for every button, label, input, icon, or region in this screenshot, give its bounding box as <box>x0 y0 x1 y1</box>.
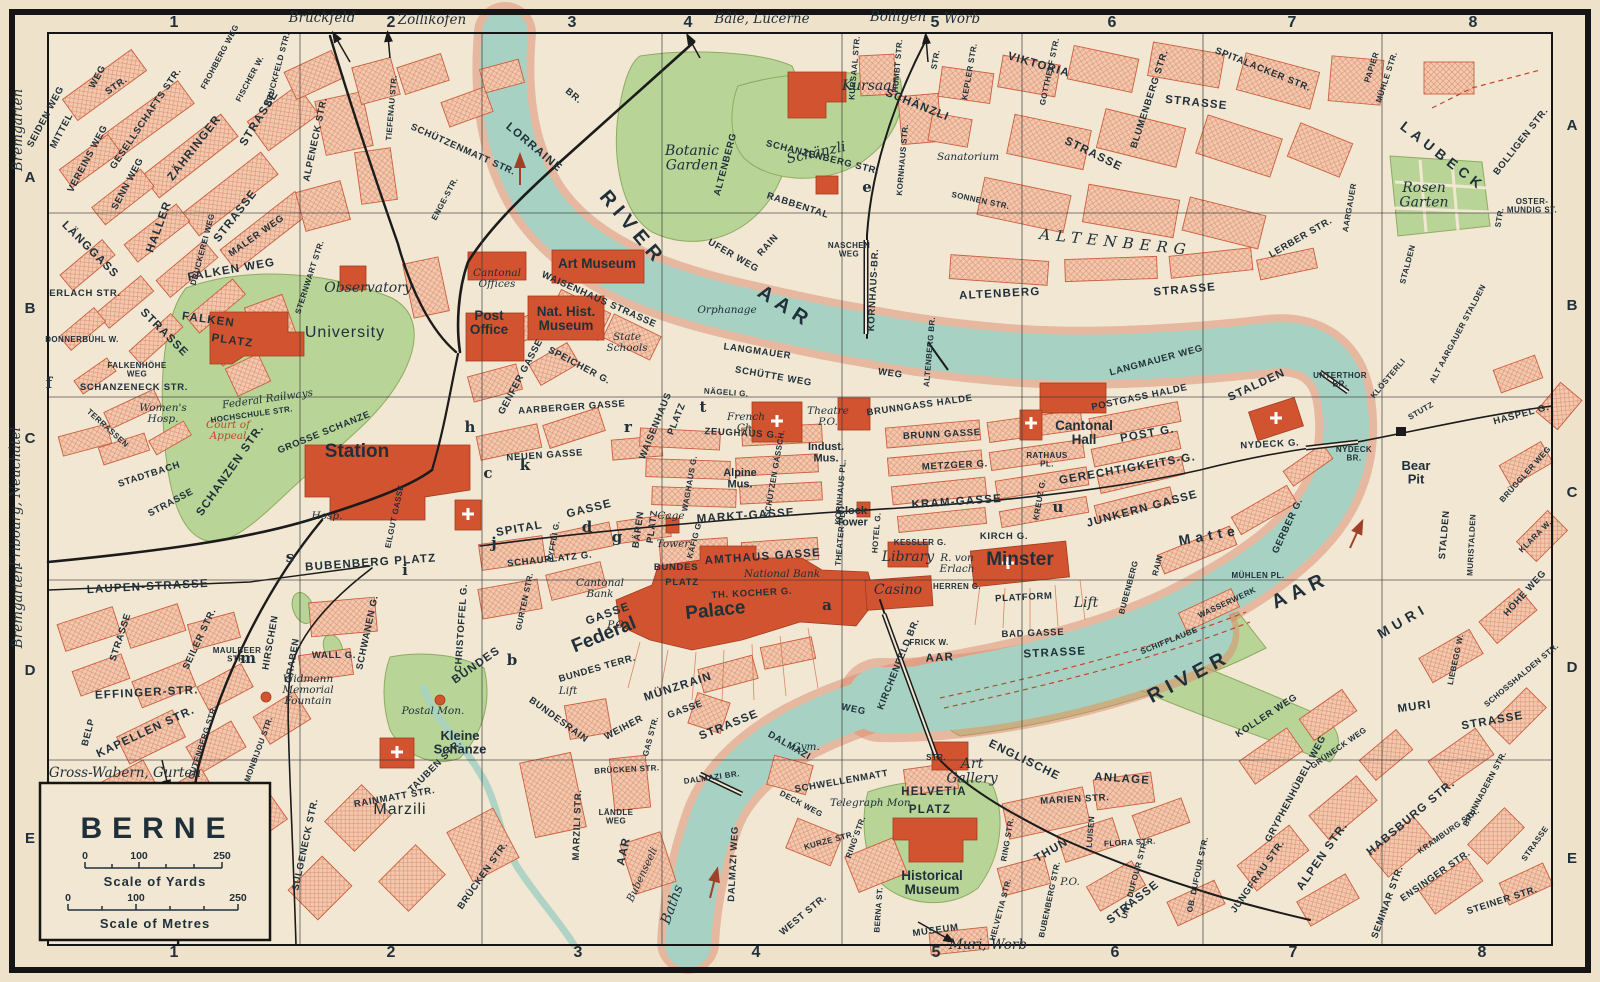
grid-letter-left: A <box>25 169 36 186</box>
map-label-pl: BotanicGarden <box>664 143 719 174</box>
map-label-pl2: Tower <box>657 538 691 550</box>
map-label-twn: University <box>305 324 385 341</box>
scale-tick: 100 <box>130 850 148 862</box>
widmann-fountain-dot <box>261 692 271 702</box>
rabbental-building <box>816 176 838 194</box>
map-label-pl2: R. vonErlach <box>939 552 975 575</box>
map-label-lt: m <box>240 649 256 667</box>
map-label-dest: Bremgarten <box>10 89 26 172</box>
grid-number-top: 4 <box>684 14 693 31</box>
city-block <box>1424 62 1474 94</box>
map-label-pl2: Orphanage <box>697 304 756 316</box>
map-label-pl: Observatory <box>324 280 413 296</box>
map-label-pl: Lift <box>1073 595 1099 611</box>
map-label-pl2: P.O. <box>1059 876 1080 888</box>
map-label-lt: t <box>700 398 707 416</box>
city-block <box>652 487 737 508</box>
scale-tick: 0 <box>65 892 71 904</box>
grid-number-top: 6 <box>1108 14 1117 31</box>
map-label-dest: Bolligen <box>869 9 926 25</box>
grid-letter-left: C <box>25 430 36 447</box>
map-label-s2: BAD GASSE <box>1001 627 1064 640</box>
grid-number-top: 1 <box>170 14 179 31</box>
map-label-pl2: CantonalOffices <box>473 267 521 290</box>
map-label-lt: e <box>862 178 872 196</box>
map-label-s2: KIRCH G. <box>980 531 1028 542</box>
map-label-pl2: Cage <box>657 510 684 522</box>
map-label-lt: k <box>520 456 531 474</box>
map-label-s2: WALL G. <box>312 650 356 661</box>
grid-letter-right: C <box>1567 484 1578 501</box>
map-label-dest: Zollikofen <box>397 12 466 28</box>
map-label-s1: HELVETIA <box>901 786 967 798</box>
map-label-lt: j <box>489 534 496 552</box>
scale-tick: 0 <box>82 850 88 862</box>
map-label-lt: d <box>582 518 593 536</box>
grid-number-top: 3 <box>568 14 577 31</box>
map-label-pl2: Sanatorium <box>937 151 999 163</box>
map-label-lt: h <box>465 418 476 436</box>
berne-map-page: BERNE 01002500100250 Scale of Yards Scal… <box>0 0 1600 982</box>
grid-letter-left: E <box>25 830 35 847</box>
city-block <box>1065 256 1158 281</box>
map-label-lt: i <box>402 561 408 579</box>
map-label-dest: Gross-Wabern, Gurten <box>49 765 201 781</box>
map-label-lm2: Art Museum <box>558 256 636 271</box>
map-canvas: BERNE 01002500100250 Scale of Yards Scal… <box>0 0 1600 982</box>
map-label-lt: a <box>822 596 832 614</box>
map-label-twn: Marzili <box>373 801 426 818</box>
grid-number-bottom: 6 <box>1111 944 1120 961</box>
map-title: BERNE <box>80 812 235 845</box>
grid-number-top: 2 <box>387 14 396 31</box>
map-label-s1: PLATZ <box>909 804 951 816</box>
map-label-pl2: Postal Mon. <box>401 705 465 717</box>
scale-tick: 100 <box>127 892 145 904</box>
map-label-dest: Brückfeld <box>288 10 356 26</box>
grid-letter-right: A <box>1567 117 1578 134</box>
grid-number-bottom: 7 <box>1289 944 1298 961</box>
map-label-lm: Station <box>325 441 389 462</box>
grid-number-bottom: 1 <box>170 944 179 961</box>
map-label-lt: u <box>1053 498 1064 516</box>
map-label-s3: MÜHLEN PL. <box>1232 571 1285 580</box>
grid-number-top: 8 <box>1469 14 1478 31</box>
scale-metres-label: Scale of Metres <box>100 916 210 931</box>
map-label-pl2: WidmannMemorialFountain <box>281 673 333 707</box>
grid-number-bottom: 4 <box>752 944 761 961</box>
map-label-pl2: Hosp. <box>311 510 343 522</box>
grid-number-bottom: 5 <box>932 944 941 961</box>
map-label-lt: g <box>612 528 623 546</box>
city-block <box>355 148 398 205</box>
map-label-s3: HERREN G. <box>933 582 981 591</box>
map-label-dest: Bâle, Lucerne <box>713 11 809 27</box>
map-label-lt: c <box>483 464 492 482</box>
map-label-pl: RosenGarten <box>1399 180 1448 211</box>
scale-tick: 250 <box>213 850 231 862</box>
map-label-s3: FRICK W. <box>909 638 948 647</box>
map-label-sn: AlpineMus. <box>723 467 757 491</box>
grid-letter-right: B <box>1567 297 1578 314</box>
grid-letter-right: D <box>1567 659 1578 676</box>
map-label-pl: Library <box>881 549 935 565</box>
map-label-pl2: Lift <box>558 685 578 697</box>
map-label-dest: Fribourg, Neuchâtel <box>8 427 24 568</box>
map-label-pl2: Telegraph Mon. <box>830 797 914 809</box>
map-label-lm: Minster <box>986 549 1054 570</box>
map-label-lm2: HistoricalMuseum <box>901 868 963 897</box>
map-label-s3: STR. <box>926 753 946 762</box>
map-label-s3: DONNERBÜHL W. <box>45 335 119 344</box>
map-label-lt: r <box>624 418 633 436</box>
map-label-pl: Casino <box>874 582 922 598</box>
title-box: BERNE 01002500100250 Scale of Yards Scal… <box>40 783 270 940</box>
grid-number-bottom: 8 <box>1478 944 1487 961</box>
postal-monument-dot <box>435 695 445 705</box>
bear-pit-marker <box>1396 427 1406 436</box>
map-label-s2: SCHANZENECK STR. <box>80 382 188 393</box>
map-label-dest: Worb <box>944 11 980 27</box>
map-label-dest: Bremgarten <box>10 566 26 649</box>
map-label-lt: b <box>507 651 518 669</box>
map-label-s2: BUNDES <box>654 562 698 573</box>
map-label-lm2: PostOffice <box>470 308 509 337</box>
grid-number-bottom: 2 <box>387 944 396 961</box>
scale-yards-label: Scale of Yards <box>104 874 207 889</box>
map-label-lm2: Nat. Hist.Museum <box>537 304 596 333</box>
map-label-sn2: KleineSchanze <box>434 728 487 757</box>
map-label-s2: PLATZ <box>665 577 698 588</box>
grid-letter-left: D <box>25 662 36 679</box>
grid-number-top: 5 <box>931 14 940 31</box>
scale-tick: 250 <box>229 892 247 904</box>
map-label-lt: s <box>286 548 294 566</box>
grid-letter-right: E <box>1567 850 1577 867</box>
grid-number-bottom: 3 <box>574 944 583 961</box>
grid-letter-left: B <box>25 300 36 317</box>
map-label-pl2: National Bank <box>743 568 820 580</box>
map-label-s2: ERLACH STR. <box>49 288 121 299</box>
grid-number-top: 7 <box>1288 14 1297 31</box>
map-label-s3: KESSLER G. <box>894 538 946 547</box>
map-label-s1: AAR <box>925 651 954 664</box>
